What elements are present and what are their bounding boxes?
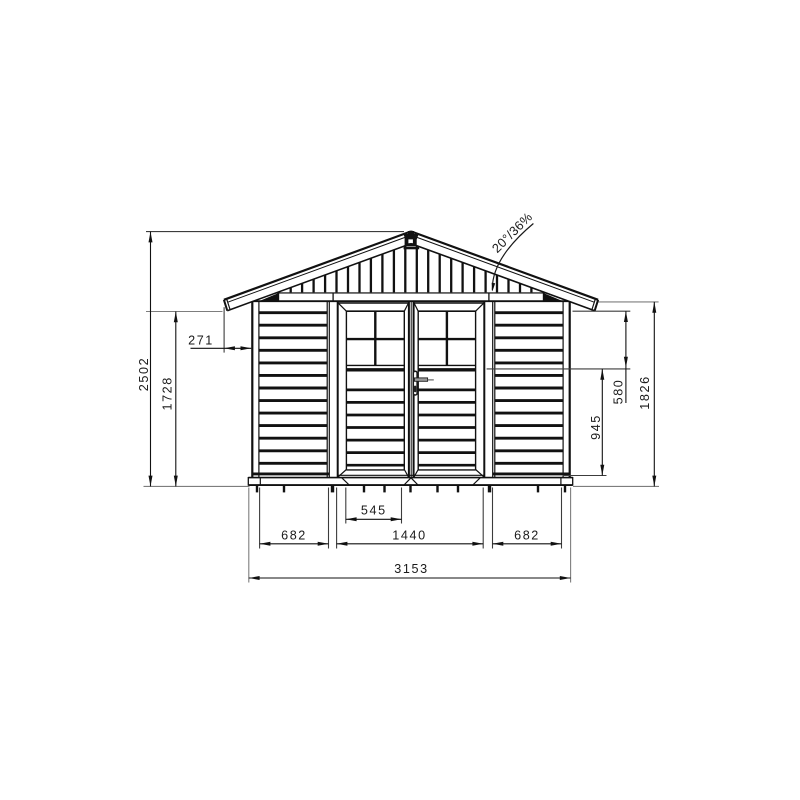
svg-text:1826: 1826: [638, 375, 652, 409]
svg-text:2502: 2502: [137, 357, 151, 391]
svg-text:682: 682: [281, 529, 307, 543]
svg-text:1440: 1440: [392, 529, 426, 543]
svg-text:1728: 1728: [160, 376, 174, 410]
svg-text:682: 682: [514, 529, 540, 543]
svg-text:545: 545: [361, 504, 387, 518]
svg-text:3153: 3153: [394, 562, 428, 576]
svg-text:580: 580: [612, 379, 626, 405]
svg-text:271: 271: [188, 334, 214, 348]
svg-text:945: 945: [589, 414, 603, 440]
